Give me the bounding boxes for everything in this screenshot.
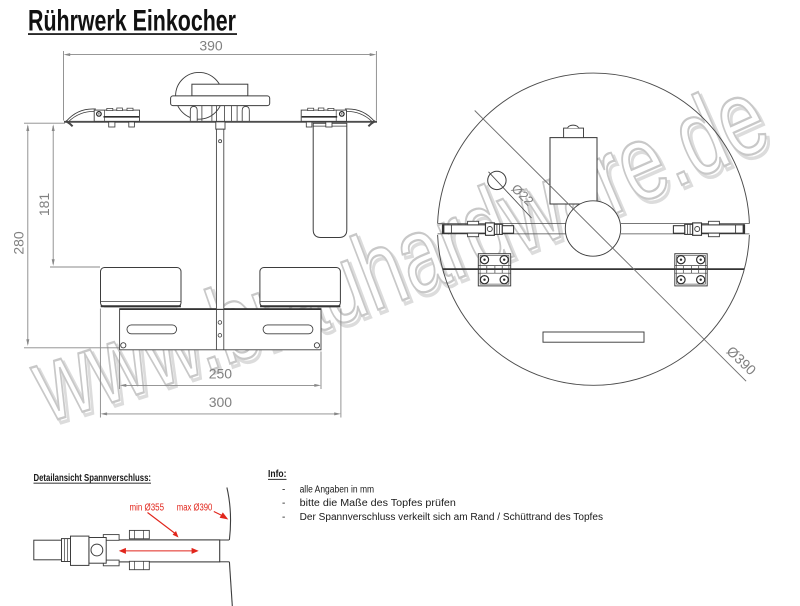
svg-text:300: 300 <box>209 394 233 410</box>
svg-text:Info:: Info: <box>268 469 287 480</box>
svg-text:alle Angaben in mm: alle Angaben in mm <box>300 484 375 495</box>
svg-text:280: 280 <box>10 231 26 255</box>
svg-text:bitte die Maße des Topfes prüf: bitte die Maße des Topfes prüfen <box>300 498 456 509</box>
svg-text:-: - <box>282 498 285 509</box>
svg-text:Rührwerk Einkocher: Rührwerk Einkocher <box>28 5 236 38</box>
svg-text:Der Spannverschluss verkeilt s: Der Spannverschluss verkeilt sich am Ran… <box>300 512 603 523</box>
svg-text:max Ø390: max Ø390 <box>177 503 213 514</box>
svg-text:-: - <box>282 484 285 495</box>
svg-text:390: 390 <box>199 37 223 53</box>
svg-text:-: - <box>282 512 285 523</box>
svg-text:250: 250 <box>209 366 233 382</box>
svg-text:Detailansicht Spannverschluss:: Detailansicht Spannverschluss: <box>34 473 152 484</box>
svg-text:min Ø355: min Ø355 <box>130 503 165 514</box>
svg-text:181: 181 <box>36 193 52 217</box>
